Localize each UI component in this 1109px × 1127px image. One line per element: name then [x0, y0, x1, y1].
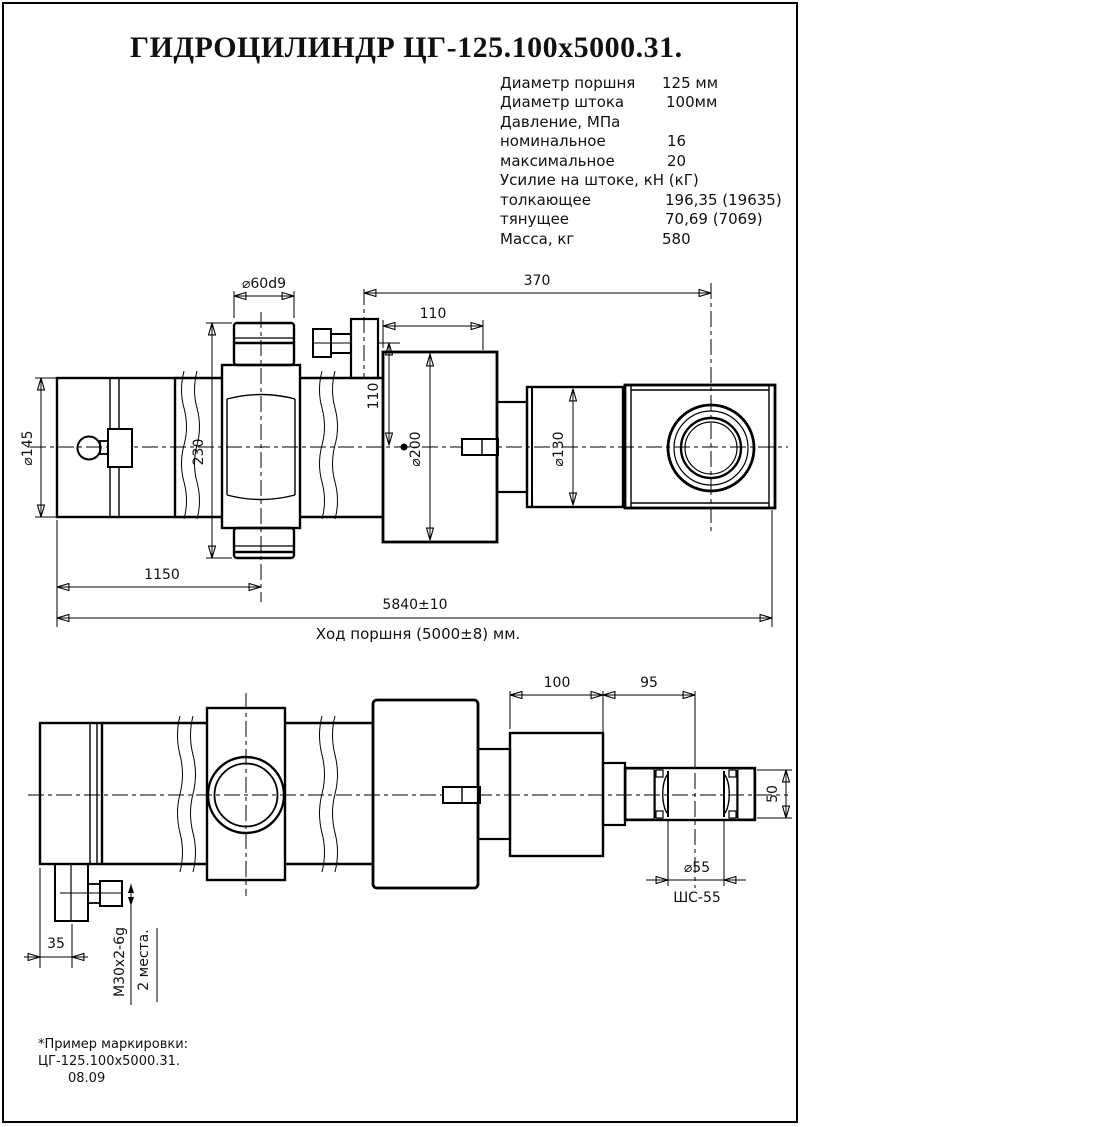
rod-end-block: [40, 723, 102, 864]
note-line2: ЦГ-125.100х5000.31.: [38, 1054, 180, 1069]
port-fitting: [313, 289, 378, 378]
spec-value: 20: [667, 152, 686, 170]
break-line: [333, 371, 338, 519]
dim-total-length: 5840±10: [382, 597, 447, 613]
top-view-drawing: ⌀60d9 370 110 110 230 ⌀145 ⌀200 ⌀130: [20, 273, 788, 643]
dim-phi55: ⌀55: [684, 860, 710, 876]
spec-label: Диаметр штока: [500, 93, 624, 111]
dim-phi200: ⌀200: [408, 431, 424, 466]
dim-1150: 1150: [144, 567, 180, 583]
spec-table: Диаметр поршня 125 мм Диаметр штока 100м…: [500, 74, 782, 248]
dim-230: 230: [191, 439, 207, 466]
break-line: [178, 716, 183, 872]
dim-phi60: ⌀60d9: [242, 276, 286, 292]
bracket-fitting: М30х2-6g 2 места.: [55, 864, 157, 1005]
side-boss: [462, 439, 498, 455]
spec-label: номинальное: [500, 132, 606, 150]
spec-value: 125 мм: [662, 74, 718, 92]
spec-label: толкающее: [500, 191, 591, 209]
break-line: [320, 716, 325, 872]
break-line: [320, 371, 325, 519]
spec-value: 196,35 (19635): [665, 191, 782, 209]
page-title: ГИДРОЦИЛИНДР ЦГ-125.100х5000.31.: [130, 31, 683, 64]
note-line3: 08.09: [68, 1071, 105, 1086]
ball-fitting: [78, 437, 101, 460]
spec-label: Диаметр поршня: [500, 74, 635, 92]
guide-bottom-boss: [234, 528, 294, 558]
break-line: [182, 371, 187, 519]
spec-label: Усилие на штоке, кН (кГ): [500, 171, 699, 189]
dim-110-vert: 110: [366, 383, 382, 410]
dim-phi130: ⌀130: [551, 431, 567, 466]
drawing-canvas: ГИДРОЦИЛИНДР ЦГ-125.100х5000.31. Диаметр…: [0, 0, 1109, 1127]
dim-35: 35: [47, 936, 65, 952]
spec-value: 16: [667, 132, 686, 150]
neck: [603, 763, 625, 825]
dim-100: 100: [544, 675, 571, 691]
drawing-sheet: ГИДРОЦИЛИНДР ЦГ-125.100х5000.31. Диаметр…: [0, 0, 1109, 1127]
spec-value: 70,69 (7069): [665, 210, 763, 228]
break-line: [191, 716, 196, 872]
bottom-view-drawing: М30х2-6g 2 места. 35: [24, 675, 792, 1005]
marking-note: *Пример маркировки: ЦГ-125.100х5000.31. …: [38, 1037, 188, 1086]
spec-label: Давление, МПа: [500, 113, 620, 131]
break-line: [333, 716, 338, 872]
spec-label: Масса, кг: [500, 230, 574, 248]
step: [478, 749, 510, 839]
spec-label: тянущее: [500, 210, 569, 228]
dim-places: 2 места.: [136, 929, 152, 990]
dim-370: 370: [524, 273, 551, 289]
dim-bearing: ШС-55: [673, 890, 721, 906]
dim-95: 95: [640, 675, 658, 691]
stroke-note: Ход поршня (5000±8) мм.: [316, 625, 521, 643]
spec-value: 580: [662, 230, 691, 248]
dim-50: 50: [765, 785, 781, 803]
spec-label: максимальное: [500, 152, 615, 170]
dim-phi145: ⌀145: [20, 430, 36, 465]
spec-value: 100мм: [666, 93, 717, 111]
note-line1: *Пример маркировки:: [38, 1037, 188, 1052]
dim-110-top: 110: [420, 306, 447, 322]
bottom-view-dimensions: 100 95 50 ⌀55 ШС-55: [510, 675, 792, 906]
dim-thread: М30х2-6g: [112, 927, 128, 997]
